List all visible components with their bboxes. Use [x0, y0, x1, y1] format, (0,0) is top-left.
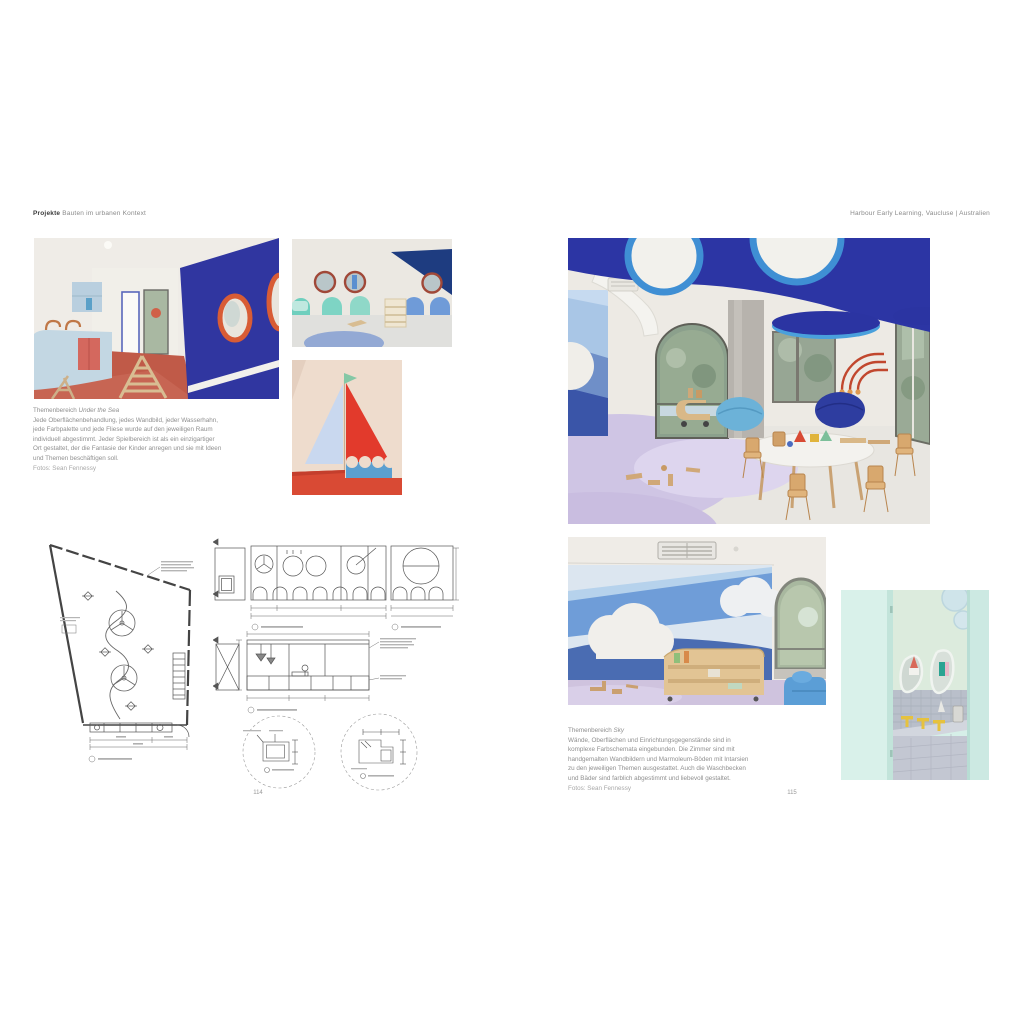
photo-sky-playroom-main [568, 238, 930, 524]
light-blue-pouf [716, 397, 764, 431]
running-head-chapter-label: Bauten im urbanen Kontext [60, 210, 146, 217]
running-head-section-label: Projekte [33, 210, 60, 217]
soap-dispenser [953, 706, 963, 722]
photo-bathroom [841, 590, 989, 780]
plan-annotation [148, 561, 194, 575]
wooden-shelf [385, 299, 406, 327]
balloon [942, 590, 968, 611]
row2-scale-label [248, 707, 297, 713]
caption-title: Themenbereich Under the Sea [33, 406, 263, 416]
photo-sky-mural-room [568, 537, 826, 705]
caption-credit: Fotos: Sean Fennessy [568, 784, 803, 794]
mint-wall-right [967, 590, 989, 780]
caption-sky: Themenbereich Sky Wände, Oberflächen und… [568, 726, 803, 794]
row1-dimensions [251, 548, 459, 619]
plan-dimension-lines [90, 736, 187, 750]
book-spread: Projekte Bauten im urbanen Kontext Harbo… [0, 0, 1024, 1024]
elevation-joinery-wall [213, 637, 369, 690]
row1-scale-labels [252, 624, 441, 630]
plan-ceiling-fan [111, 665, 137, 691]
photo-wave-mural-room [292, 239, 452, 347]
floor-plan-drawing [40, 533, 205, 768]
caption-body: Wände, Oberflächen und Einrichtungsgegen… [568, 736, 803, 784]
elevation-large-porthole-wall [391, 546, 453, 600]
photo-under-the-sea-room [34, 238, 279, 399]
arched-window [774, 579, 826, 679]
caption-body: Jede Oberflächenbehandlung, jedes Wandbi… [33, 416, 263, 464]
plan-shelf [173, 653, 185, 699]
wooden-shelf-unit [664, 649, 764, 702]
detail-circle-1 [243, 716, 315, 788]
running-head-right: Harbour Early Learning, Vaucluse | Austr… [670, 210, 990, 217]
page-number-right: 115 [772, 790, 812, 796]
bathroom-interior [893, 590, 972, 780]
ceiling-air-vent [658, 542, 716, 559]
detail-circle-2 [341, 714, 417, 790]
glass-door [144, 290, 168, 354]
running-head-left: Projekte Bauten im urbanen Kontext [33, 210, 353, 217]
page-number-left: 114 [238, 790, 278, 796]
caption-under-the-sea: Themenbereich Under the Sea Jede Oberflä… [33, 406, 263, 474]
tiled-basin [893, 720, 967, 780]
left-mural-wall [568, 290, 608, 436]
porthole-window-partial [269, 275, 279, 329]
running-head-project-label: Harbour Early Learning, Vaucluse | Austr… [850, 210, 990, 217]
arched-window [656, 324, 728, 438]
row2-annotations [369, 638, 416, 680]
elevation-drawings [213, 528, 463, 792]
photo-sailboat-mural [292, 360, 402, 495]
blue-framed-door [122, 292, 139, 354]
caption-credit: Fotos: Sean Fennessy [33, 464, 263, 474]
mint-door [841, 590, 887, 780]
plan-scale-label [89, 756, 132, 762]
dark-blue-pouf [815, 392, 865, 428]
caption-title: Themenbereich Sky [568, 726, 803, 736]
elevation-under-the-sea-wall [213, 539, 386, 600]
